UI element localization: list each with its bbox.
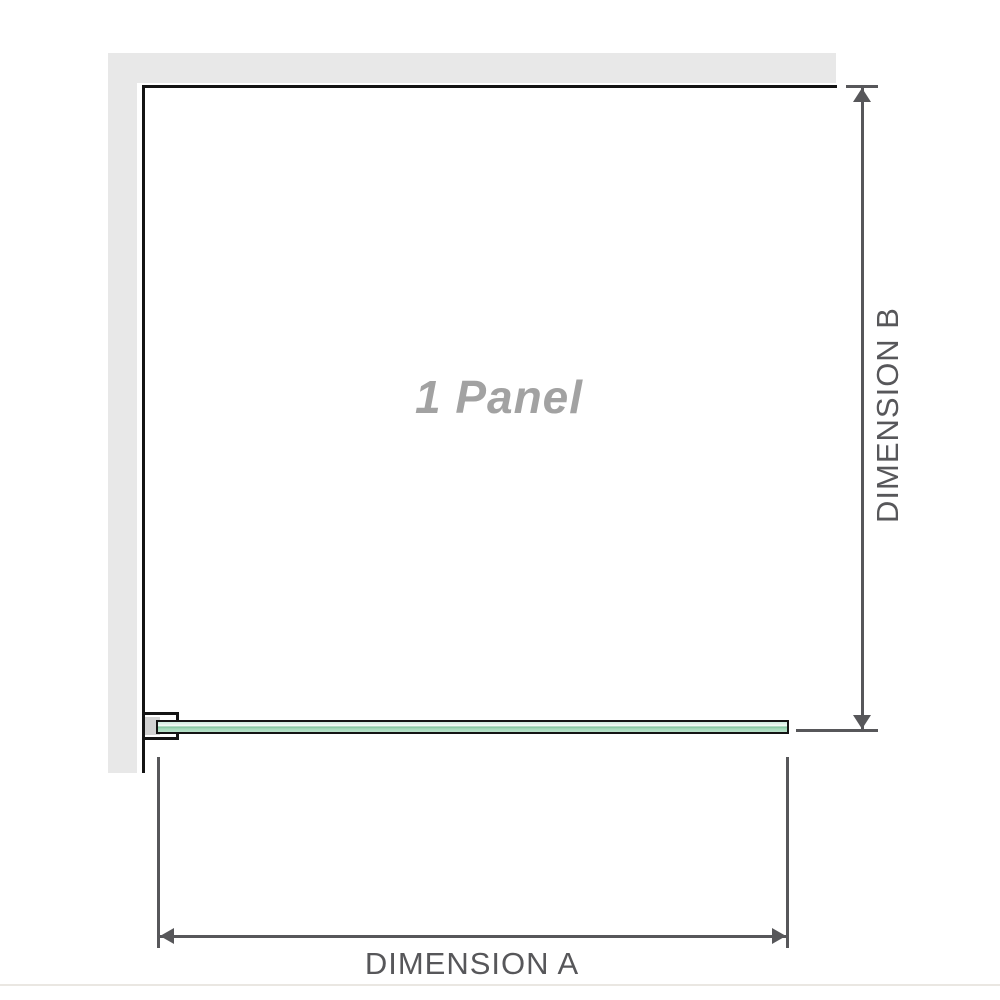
dim-a-line bbox=[160, 935, 786, 938]
dim-a-arrow-left-icon bbox=[160, 928, 174, 944]
dim-b-label: DIMENSION B bbox=[868, 215, 908, 615]
panel-area-label: 1 Panel bbox=[299, 370, 699, 424]
panel-left-edge bbox=[142, 85, 145, 773]
dim-b-cap-bottom bbox=[796, 729, 878, 732]
dim-a-arrow-right-icon bbox=[772, 928, 786, 944]
page-baseline bbox=[0, 984, 1000, 986]
wall-top bbox=[108, 53, 836, 83]
wall-side bbox=[108, 53, 137, 773]
dim-b-arrow-down-icon bbox=[853, 715, 871, 729]
shower-panel-diagram: 1 Panel DIMENSION B DIMENSION A bbox=[0, 0, 1000, 1000]
panel-top-edge bbox=[142, 85, 837, 88]
dim-b-line bbox=[861, 88, 864, 729]
dim-a-ext-right bbox=[786, 757, 789, 948]
dim-b-arrow-up-icon bbox=[853, 88, 871, 102]
dim-a-ext-left bbox=[157, 757, 160, 948]
glass-panel-bar bbox=[156, 720, 789, 734]
dim-a-label: DIMENSION A bbox=[272, 946, 672, 982]
